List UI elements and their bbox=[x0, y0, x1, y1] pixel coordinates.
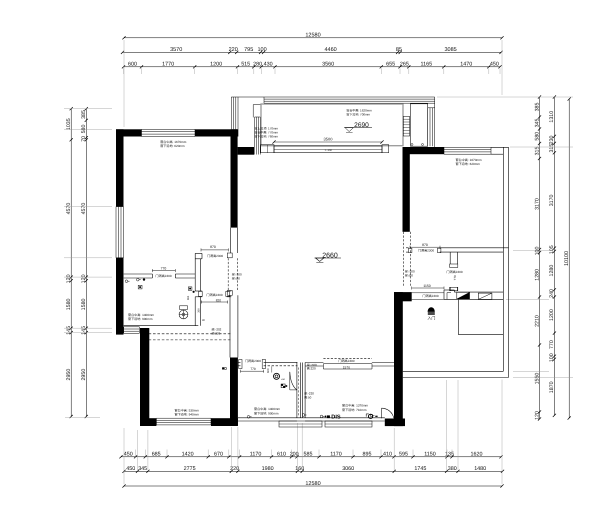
svg-text:670: 670 bbox=[214, 452, 223, 458]
svg-text:窗台中高: 1670mm: 窗台中高: 1670mm bbox=[456, 158, 483, 162]
svg-text:1570: 1570 bbox=[343, 365, 351, 369]
svg-text:窗台中高: 1400mm: 窗台中高: 1400mm bbox=[128, 313, 155, 317]
svg-text:门洞高2300: 门洞高2300 bbox=[207, 254, 223, 258]
svg-text:门洞高2300: 门洞高2300 bbox=[155, 274, 171, 278]
svg-text:430: 430 bbox=[264, 62, 273, 68]
svg-text:580: 580 bbox=[81, 125, 87, 134]
svg-text:315: 315 bbox=[549, 144, 555, 153]
svg-text:门洞高2300: 门洞高2300 bbox=[422, 294, 438, 298]
svg-text:280: 280 bbox=[253, 62, 262, 68]
svg-text:610: 610 bbox=[277, 452, 286, 458]
svg-text:515: 515 bbox=[241, 62, 250, 68]
svg-text:12580: 12580 bbox=[305, 33, 320, 39]
svg-text:3500: 3500 bbox=[324, 137, 334, 142]
svg-text:窗下沿地: 940mm: 窗下沿地: 940mm bbox=[175, 413, 200, 417]
svg-text:120: 120 bbox=[66, 274, 72, 283]
svg-text:1580: 1580 bbox=[66, 298, 72, 310]
svg-text:2775: 2775 bbox=[184, 466, 196, 472]
svg-text:1620: 1620 bbox=[471, 452, 483, 458]
svg-text:100: 100 bbox=[549, 353, 555, 362]
svg-text:窗下沿地: 620mm: 窗下沿地: 620mm bbox=[160, 144, 185, 148]
svg-text:门洞高2300: 门洞高2300 bbox=[338, 359, 354, 363]
svg-text:450: 450 bbox=[490, 62, 499, 68]
svg-text:1165: 1165 bbox=[421, 62, 433, 68]
svg-text:4570: 4570 bbox=[66, 203, 72, 215]
svg-text:F.-260: F.-260 bbox=[325, 149, 333, 152]
svg-text:870: 870 bbox=[210, 245, 216, 249]
svg-text:1170: 1170 bbox=[250, 452, 262, 458]
svg-text:1035: 1035 bbox=[66, 118, 72, 130]
svg-text:3085: 3085 bbox=[444, 47, 456, 53]
svg-text:窗台中高: 1370mm: 窗台中高: 1370mm bbox=[342, 404, 369, 408]
svg-text:3560: 3560 bbox=[322, 62, 334, 68]
svg-text:230: 230 bbox=[549, 135, 555, 144]
svg-text:2660: 2660 bbox=[322, 252, 338, 259]
svg-text:2210: 2210 bbox=[534, 315, 540, 327]
svg-text:135: 135 bbox=[445, 452, 454, 458]
svg-text:345: 345 bbox=[138, 466, 147, 472]
svg-text:685: 685 bbox=[152, 452, 161, 458]
svg-text:145: 145 bbox=[81, 326, 87, 335]
svg-text:3170: 3170 bbox=[549, 194, 555, 206]
svg-text:770: 770 bbox=[453, 275, 457, 280]
svg-text:1280: 1280 bbox=[534, 269, 540, 281]
svg-text:窗台中高: 1670mm: 窗台中高: 1670mm bbox=[160, 140, 187, 144]
svg-text:梁:(60: 梁:(60 bbox=[405, 274, 414, 278]
svg-text:窗下沿地: 900mm: 窗下沿地: 900mm bbox=[128, 317, 153, 321]
svg-text:梁:(60: 梁:(60 bbox=[232, 276, 241, 280]
svg-text:窗下沿地: 710mm: 窗下沿地: 710mm bbox=[342, 408, 367, 412]
svg-text:1200: 1200 bbox=[210, 62, 222, 68]
svg-text:梁:220: 梁:220 bbox=[212, 332, 221, 336]
svg-text:105: 105 bbox=[549, 245, 555, 254]
svg-text:795: 795 bbox=[244, 47, 253, 53]
svg-text:385: 385 bbox=[534, 103, 540, 112]
svg-text:2950: 2950 bbox=[81, 369, 87, 381]
svg-text:门洞高2300: 门洞高2300 bbox=[446, 270, 462, 274]
svg-text:770: 770 bbox=[549, 340, 555, 349]
svg-text:770: 770 bbox=[250, 367, 256, 371]
svg-text:门洞高2300: 门洞高2300 bbox=[245, 359, 261, 363]
svg-text:265: 265 bbox=[400, 62, 409, 68]
svg-text:10100: 10100 bbox=[564, 251, 570, 266]
svg-text:窗下沿地: 900mm: 窗下沿地: 900mm bbox=[254, 412, 279, 416]
svg-text:380: 380 bbox=[448, 466, 457, 472]
svg-text:820: 820 bbox=[216, 298, 222, 302]
svg-text:145: 145 bbox=[66, 326, 72, 335]
svg-text:120: 120 bbox=[534, 411, 540, 420]
svg-text:窗下沿地: 760mm: 窗下沿地: 760mm bbox=[254, 134, 278, 138]
svg-text:580: 580 bbox=[534, 132, 540, 141]
svg-text:600: 600 bbox=[128, 62, 137, 68]
svg-text:4570: 4570 bbox=[81, 203, 87, 215]
svg-text:入门: 入门 bbox=[427, 315, 435, 320]
svg-text:门洞高2300: 门洞高2300 bbox=[418, 249, 434, 253]
svg-text:1150: 1150 bbox=[423, 284, 430, 288]
svg-text:1550: 1550 bbox=[534, 373, 540, 385]
svg-text:160: 160 bbox=[295, 466, 304, 472]
svg-text:1280: 1280 bbox=[549, 265, 555, 277]
svg-text:770: 770 bbox=[161, 266, 167, 270]
svg-text:1310: 1310 bbox=[549, 111, 555, 123]
svg-text:3170: 3170 bbox=[534, 198, 540, 210]
svg-text:220: 220 bbox=[229, 47, 238, 53]
svg-text:595: 595 bbox=[399, 452, 408, 458]
svg-text:1480: 1480 bbox=[474, 466, 486, 472]
svg-text:窗下沿地: 700mm: 窗下沿地: 700mm bbox=[346, 113, 370, 117]
svg-text:1980: 1980 bbox=[262, 466, 274, 472]
svg-text:3060: 3060 bbox=[342, 466, 354, 472]
svg-text:窗下沿地: 620mm: 窗下沿地: 620mm bbox=[456, 162, 481, 166]
svg-text:365: 365 bbox=[187, 295, 190, 300]
svg-text:655: 655 bbox=[386, 62, 395, 68]
svg-text:410: 410 bbox=[383, 452, 392, 458]
svg-text:4460: 4460 bbox=[324, 47, 336, 53]
svg-text:85: 85 bbox=[396, 47, 402, 53]
svg-text:1150: 1150 bbox=[424, 452, 436, 458]
svg-text:300: 300 bbox=[198, 308, 201, 313]
svg-text:600: 600 bbox=[266, 368, 270, 373]
svg-text:450: 450 bbox=[124, 452, 133, 458]
svg-text:高:220: 高:220 bbox=[307, 367, 316, 371]
svg-text:385: 385 bbox=[81, 110, 87, 119]
svg-text:门洞高2300: 门洞高2300 bbox=[206, 293, 222, 297]
svg-text:DIS: DIS bbox=[331, 414, 341, 420]
svg-text:585: 585 bbox=[304, 452, 313, 458]
svg-text:1770: 1770 bbox=[162, 62, 174, 68]
svg-text:70: 70 bbox=[81, 136, 87, 142]
svg-text:12580: 12580 bbox=[305, 481, 320, 487]
svg-text:870: 870 bbox=[422, 243, 428, 247]
svg-text:1745: 1745 bbox=[414, 466, 426, 472]
svg-text:1200: 1200 bbox=[549, 309, 555, 321]
svg-text:1470: 1470 bbox=[460, 62, 472, 68]
svg-text:450: 450 bbox=[126, 466, 135, 472]
svg-text:345: 345 bbox=[534, 119, 540, 128]
svg-text:窗台中高: 530mm: 窗台中高: 530mm bbox=[175, 408, 200, 412]
svg-text:窗台中高: 1400mm: 窗台中高: 1400mm bbox=[254, 407, 281, 411]
svg-text:120: 120 bbox=[81, 274, 87, 283]
svg-text:315: 315 bbox=[534, 147, 540, 156]
svg-text:3570: 3570 bbox=[170, 47, 182, 53]
svg-text:100: 100 bbox=[258, 47, 267, 53]
svg-text:1170: 1170 bbox=[330, 452, 342, 458]
svg-text:1870: 1870 bbox=[549, 381, 555, 393]
svg-text:2950: 2950 bbox=[66, 369, 72, 381]
svg-text:1420: 1420 bbox=[182, 452, 194, 458]
svg-text:100: 100 bbox=[534, 247, 540, 256]
svg-text:高:50: 高:50 bbox=[304, 395, 312, 399]
svg-text:240: 240 bbox=[549, 289, 555, 298]
svg-text:895: 895 bbox=[363, 452, 372, 458]
svg-text:1580: 1580 bbox=[81, 298, 87, 310]
